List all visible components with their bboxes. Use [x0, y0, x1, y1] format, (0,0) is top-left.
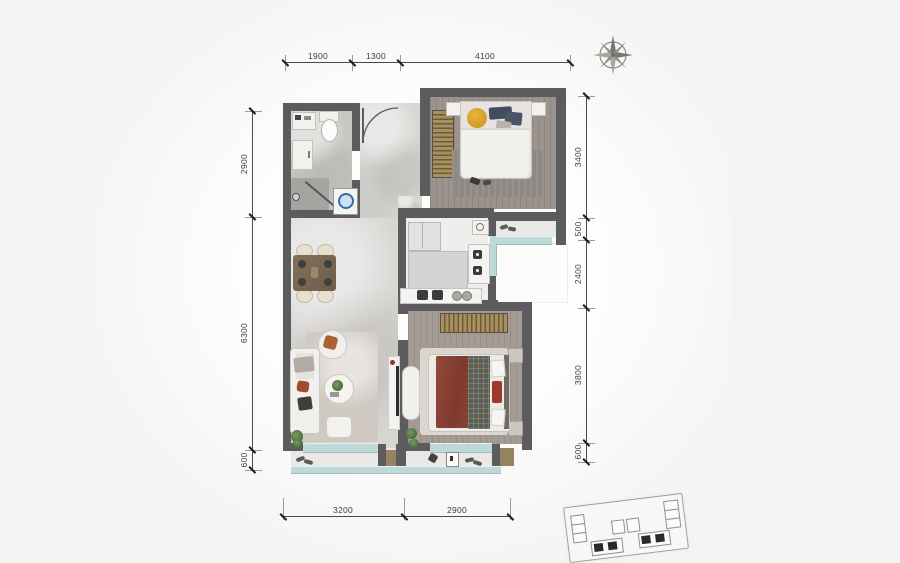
vanity-handle: [308, 151, 310, 158]
washer-drum-icon: [338, 193, 354, 209]
entry-door-arc: [356, 101, 404, 149]
planter-plant: [409, 439, 419, 448]
wall: [492, 444, 500, 467]
wall: [420, 97, 430, 196]
wall: [556, 88, 566, 245]
nightstand: [508, 348, 523, 363]
wall: [494, 212, 566, 221]
wall: [420, 88, 566, 97]
key-plan-stairs: [572, 532, 587, 544]
wall: [398, 308, 408, 314]
nightstand: [446, 102, 461, 116]
key-plan-core: [626, 517, 641, 532]
open-area-floor: [494, 243, 568, 303]
dim-label-top-3: 4100: [463, 51, 507, 61]
bedroom2-wardrobe: [440, 313, 508, 333]
master-duvet: [461, 128, 529, 177]
bed2-blanket-red: [436, 356, 470, 428]
dim-label-left-2: 6300: [239, 311, 251, 355]
nightstand: [531, 102, 546, 116]
tv: [396, 366, 399, 416]
console-decor: [390, 360, 395, 365]
burner-dot: [476, 269, 479, 272]
dim-label-top-1: 1900: [296, 51, 340, 61]
plate-icon: [324, 260, 332, 268]
stove-icon: [432, 290, 443, 300]
key-plan-unit-filled: [655, 533, 665, 542]
wall: [283, 103, 360, 111]
floor-plant: [406, 428, 417, 439]
planter-block: [500, 448, 514, 466]
plate-icon: [298, 260, 306, 268]
plate-icon: [324, 278, 332, 286]
dim-label-left-3: 600: [239, 438, 251, 482]
niche-window-glass: [496, 236, 552, 245]
shower-head-icon: [292, 193, 300, 201]
dim-label-right-2: 500: [573, 207, 585, 251]
dim-line-left: [252, 111, 253, 470]
toilet-bowl-icon: [321, 119, 338, 142]
scale-dot: [450, 456, 453, 461]
burner-dot: [476, 253, 479, 256]
hood-circle: [476, 223, 484, 231]
key-plan-unit-filled: [641, 535, 651, 544]
sink-icon: [452, 291, 462, 301]
dim-label-right-3: 2400: [573, 252, 585, 296]
bedroom2-slider-glass: [430, 443, 492, 453]
sofa-throw: [293, 356, 314, 373]
wall: [398, 208, 494, 218]
ottoman: [326, 416, 352, 438]
soap-tray-icon: [304, 116, 311, 120]
key-plan-core: [611, 519, 626, 534]
floorplan: [0, 0, 900, 560]
master-wardrobe: [432, 110, 454, 178]
wall: [522, 302, 532, 450]
dim-line-bottom: [283, 516, 510, 517]
dim-label-bottom-1: 3200: [321, 505, 365, 515]
kitchen-island: [408, 251, 468, 290]
dim-label-right-1: 3400: [573, 135, 585, 179]
balcony-slider-glass: [303, 443, 378, 453]
compass-rose-icon: [591, 33, 635, 77]
dim-line-right: [586, 96, 587, 462]
balcony-railing-glass: [291, 466, 501, 474]
dim-label-bottom-2: 2900: [435, 505, 479, 515]
wall: [396, 444, 406, 467]
chaise-bench: [402, 366, 420, 420]
planter-block: [386, 450, 396, 466]
dim-label-right-4: 3800: [573, 353, 585, 397]
bed2-pillow: [490, 408, 505, 426]
sofa-pillow-dark: [297, 396, 313, 411]
faucet-icon: [295, 115, 301, 120]
coffee-table-book: [330, 392, 339, 397]
sofa-pillow-rust: [296, 380, 309, 393]
dim-label-right-5: 600: [573, 430, 585, 474]
bed2-pillow-red: [492, 381, 502, 403]
wall: [378, 444, 386, 467]
dining-chair: [296, 289, 313, 303]
key-plan-unit-filled: [594, 543, 604, 552]
dim-line-top: [285, 62, 570, 63]
sink-icon: [462, 291, 472, 301]
coffee-table-plant: [332, 380, 343, 391]
planter-plant: [293, 439, 303, 448]
dim-label-left-1: 2900: [239, 142, 251, 186]
dim-label-top-2: 1300: [354, 51, 398, 61]
bed-pillow-yellow: [467, 108, 487, 128]
key-plan-unit-filled: [608, 541, 618, 550]
dining-chair: [317, 289, 334, 303]
bed2-plaid-throw: [468, 356, 490, 429]
stove-icon: [417, 290, 428, 300]
fridge: [408, 222, 441, 251]
wall: [488, 218, 496, 236]
fridge-divider: [422, 223, 423, 248]
plate-icon: [298, 278, 306, 286]
bed2-pillow: [490, 359, 505, 377]
table-centerpiece: [311, 267, 318, 278]
key-plan-stairs: [665, 517, 681, 529]
nightstand: [508, 421, 523, 436]
